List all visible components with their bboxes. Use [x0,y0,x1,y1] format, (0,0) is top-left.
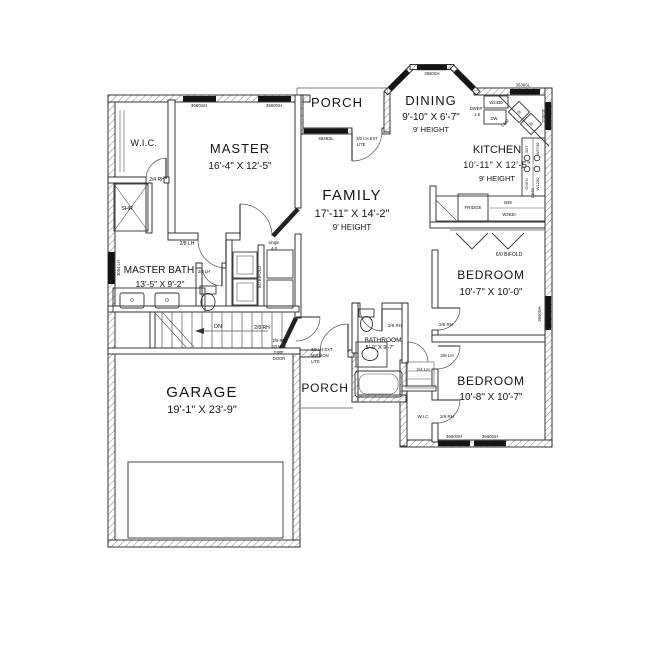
door-arc-wic-bedroom2 [438,400,460,423]
wall [226,233,240,240]
room-label-bedroom1: BEDROOM [457,268,525,282]
window-marker [438,441,470,447]
wall [108,95,115,547]
wall [146,183,152,233]
door-label-rear-2: MISSION [311,353,329,358]
door-label-fire-4: DOOR [273,356,286,361]
room-height-dining: 9' HEIGHT [413,125,449,134]
bathtub [355,371,402,397]
door-label-bathroom: 2/8 RH [388,323,402,328]
door-label-hall-closet: 6/0 BIFOLD [496,252,523,258]
door-arc-wic-master [146,158,166,179]
appliance-label-fridge: FRIDGE [464,205,481,210]
wall [432,369,438,400]
door-label-mb-closet: 5/0 BIFOLD [257,266,262,288]
door-label-fire-2: 20 MIN [272,344,286,349]
wall [295,234,301,318]
door-label-master-entry-2: 4-0 [271,246,278,251]
wall [432,335,545,342]
door-label-front-1: 3/0 LH EXT [356,136,378,141]
room-dims-garage: 19'-1" X 23'-9" [167,404,237,416]
bathroom-toilet [359,309,374,332]
labels: W.I.C. MASTER 16'-4" X 12'-5" PORCH DINI… [116,71,546,439]
window-marker [258,96,291,102]
floor-plan-drawing: W.I.C. MASTER 16'-4" X 12'-5" PORCH DINI… [0,0,650,651]
room-dims-dining: 9'-10" X 6'-7" [402,112,460,123]
door-label-rear-3: LITE [311,359,320,364]
wall [432,250,438,308]
wall [168,233,198,240]
room-dims-master: 16'-4" X 12'-5" [208,161,272,172]
wall [384,92,390,132]
window-label-master-1: 3660SH [191,103,207,108]
wall [430,222,545,228]
door-arc-master-entry [240,204,272,236]
door-label-fire-1: 2/6 RH [272,338,285,343]
room-dims-bathroom: 5'-0" X 9'-7" [366,345,395,351]
room-height-kitchen: 9' HEIGHT [479,174,515,183]
room-label-family: FAMILY [322,187,381,204]
room-label-master-bath: MASTER BATH [124,265,194,276]
wall [196,263,202,268]
room-height-family: 9' HEIGHT [333,223,372,232]
wall [432,423,438,442]
wall [168,100,175,237]
room-label-master: MASTER [210,141,270,156]
room-dims-bedroom2: 10'-8" X 10'-7" [459,392,523,403]
bifold-door [492,233,524,249]
wall [352,395,406,402]
door-label-toilet: 2/0 LH [198,269,210,274]
door-label-master-entry-1: single [269,240,281,245]
window-marker [304,129,348,134]
window-label-bedroom1-side: 3660SH [537,306,542,321]
wall [402,386,436,391]
appliance-label-dw: DW [491,116,498,121]
room-label-porch-top: PORCH [311,95,363,110]
door-label-linen: 2/4 LH [416,367,429,372]
window-marker [474,441,506,447]
room-label-wic-bedroom2: W.I.C [418,414,430,419]
wall [545,88,552,447]
door-label-front-2: LITE [357,142,366,147]
room-label-kitchen: KITCHEN [473,144,521,156]
cabinet-label-cb62: CB62 [530,187,535,198]
room-label-dining: DINING [405,93,457,108]
door-label-stair: 2/8 RH [254,325,270,331]
cabinet-label-b39: B39 [504,200,512,205]
appliance-label-oven: OVEN [524,178,529,189]
stairs-dn-label: DN [214,324,222,330]
wall [226,240,232,308]
room-label-garage: GARAGE [166,384,237,401]
window-marker [417,65,447,70]
dn-arrowhead [195,328,204,334]
wall [295,95,301,208]
room-dims-master-bath: 13'-5" X 9'-2" [136,279,185,289]
door-label-fire-3: FIRE [274,350,284,355]
wall [150,312,155,348]
window-label-bedroom2-2: 3660SH [482,434,498,439]
window-marker [183,96,216,102]
door-arc-bathroom [360,309,382,331]
door-label-rear-1: 3/0 LH EXT [311,347,333,352]
stair-break-line [155,313,186,347]
window-label-master-2: 3660SH [266,103,282,108]
floor-plan-canvas: W.I.C. MASTER 16'-4" X 12'-5" PORCH DINI… [0,0,650,651]
window-label-kitchen-side: 3030SL [541,109,546,124]
door-arc-linen [408,342,428,362]
cabinet-label-b27: B27 [524,145,529,153]
angled-wall [273,209,298,236]
door-label-wic-master: 2/4 RH [149,177,165,183]
room-label-porch-bottom: PORCH [301,381,348,395]
room-label-shower: SHR [121,206,133,212]
window-label-master-bath-side: 3054 LH [116,260,121,276]
door-label-wic-bedroom2: 2/6 RH [440,414,454,419]
door-label-bedroom2: 2/8 LH [440,353,453,358]
wall [293,350,300,547]
kitchen-counter-bottom [436,194,545,221]
door-arc-stair [296,317,320,341]
wall [402,303,408,363]
cabinet-label-c362: C362 [500,117,511,128]
cabinet-label-w3930: W3930 [502,212,516,217]
door-label-bedroom1: 2/8 RH [439,322,453,327]
room-dims-bedroom1: 10'-7" X 10'-0" [459,287,523,298]
wall [108,177,146,183]
cabinet-label-dwep: DWEP [470,106,483,111]
window-label-kitchen-sink: 3636SL [516,83,531,88]
cabinet-label-w2730: W2730 [535,142,540,155]
cabinet-label-dwep-size: 1.5 [474,112,480,117]
room-dims-kitchen: 10'-11" X 12'-5" [463,160,531,170]
window-label-bedroom2-1: 3660SH [446,434,462,439]
window-marker [546,296,552,330]
garage-door [128,462,283,538]
stair-break-line [163,313,194,347]
cabinet-label-w2430: W2430 [489,100,503,105]
wall [352,303,358,353]
bifold-door [456,233,488,249]
wall [108,540,300,547]
room-label-bedroom2: BEDROOM [457,374,525,388]
room-dims-family: 17'-11" X 14'-2" [315,208,390,220]
window-label-family-front: 4848SL [318,136,334,141]
cabinet-label-w1230: W1230 [535,177,540,190]
room-label-wic-master: W.I.C. [131,138,158,148]
wall [108,348,300,354]
room-label-bathroom: BATHROOM [364,337,401,344]
window-label-bay-center: 3660SH [424,71,439,76]
linen-closet [406,362,434,388]
door-label-master-bath: 2/8 LH [180,241,195,247]
window-marker [108,252,115,284]
wall [430,186,436,224]
window-marker [510,89,540,94]
